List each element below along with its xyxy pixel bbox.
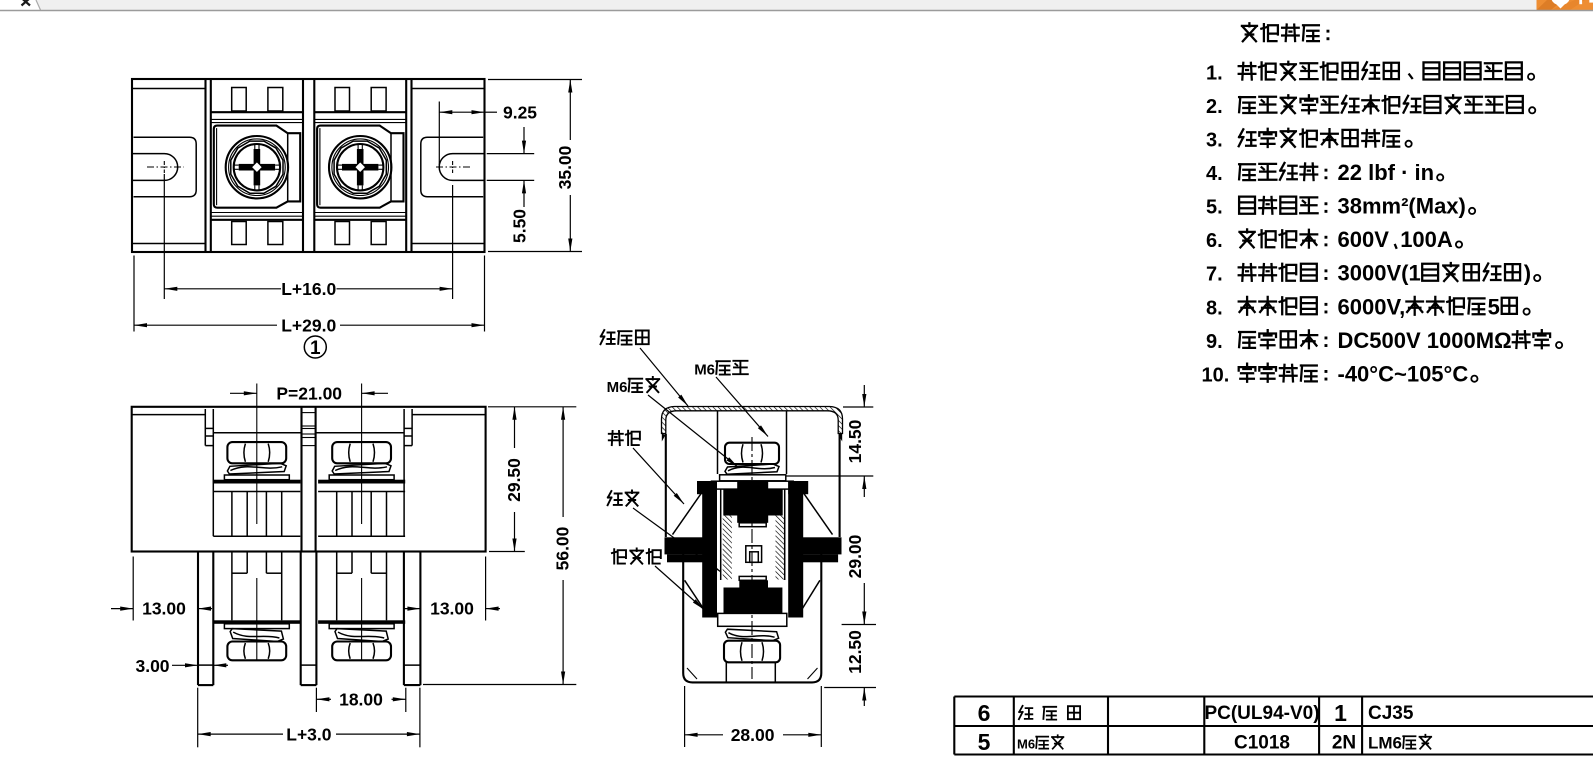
svg-text:18.00: 18.00 (339, 690, 383, 710)
svg-text:56.00: 56.00 (553, 526, 573, 570)
svg-text:7.: 7. (1206, 264, 1223, 286)
svg-text:1: 1 (1334, 700, 1347, 726)
svg-text:3.00: 3.00 (135, 656, 169, 676)
svg-text:CJ35: CJ35 (1368, 703, 1414, 724)
svg-text:29.00: 29.00 (845, 534, 865, 578)
svg-text:5: 5 (978, 729, 991, 755)
svg-text:12.50: 12.50 (845, 630, 865, 674)
svg-text:M6: M6 (1017, 737, 1035, 752)
svg-text:9.25: 9.25 (503, 102, 537, 122)
svg-text:L+3.0: L+3.0 (286, 724, 332, 744)
svg-text:600V: 600V (1338, 227, 1390, 252)
svg-text:6.: 6. (1206, 230, 1223, 252)
svg-text:14.50: 14.50 (845, 419, 865, 463)
svg-text:13.00: 13.00 (430, 599, 474, 619)
svg-text:8.: 8. (1206, 297, 1223, 319)
svg-text:5.50: 5.50 (510, 209, 530, 243)
svg-text:13.00: 13.00 (142, 599, 186, 619)
svg-text:LM6: LM6 (1368, 734, 1402, 753)
svg-text:2N: 2N (1332, 733, 1356, 754)
svg-text:35.00: 35.00 (555, 145, 575, 189)
svg-text:3000V(1: 3000V(1 (1338, 261, 1421, 286)
svg-text:4.: 4. (1206, 163, 1223, 185)
svg-text:P=21.00: P=21.00 (276, 384, 342, 404)
svg-text:6000V,: 6000V, (1338, 294, 1406, 319)
svg-text:1.: 1. (1206, 62, 1223, 84)
svg-text:C1018: C1018 (1234, 733, 1290, 754)
svg-text:L+29.0: L+29.0 (281, 315, 336, 335)
svg-text:1: 1 (310, 338, 321, 359)
svg-text:100A: 100A (1400, 227, 1453, 252)
svg-text:2.: 2. (1206, 96, 1223, 118)
svg-text:): ) (1524, 261, 1531, 286)
svg-text:5: 5 (1488, 294, 1500, 319)
svg-text:10.: 10. (1202, 364, 1230, 386)
svg-text:38mm²(Max): 38mm²(Max) (1338, 194, 1466, 219)
svg-text:DC500V 1000MΩ: DC500V 1000MΩ (1338, 328, 1512, 353)
svg-text:28.00: 28.00 (731, 725, 775, 745)
svg-text:M6: M6 (694, 362, 715, 379)
svg-text:3.: 3. (1206, 130, 1223, 152)
svg-text:-40°C~105°C: -40°C~105°C (1338, 361, 1469, 386)
svg-text:9.: 9. (1206, 331, 1223, 353)
svg-text:6: 6 (978, 700, 991, 726)
svg-text:M6: M6 (607, 379, 628, 396)
svg-text:L+16.0: L+16.0 (281, 279, 336, 299)
svg-text:22 lbf · in: 22 lbf · in (1338, 160, 1435, 185)
svg-text:5.: 5. (1206, 197, 1223, 219)
svg-text:29.50: 29.50 (504, 458, 524, 502)
svg-text:PC(UL94-V0): PC(UL94-V0) (1204, 703, 1319, 724)
